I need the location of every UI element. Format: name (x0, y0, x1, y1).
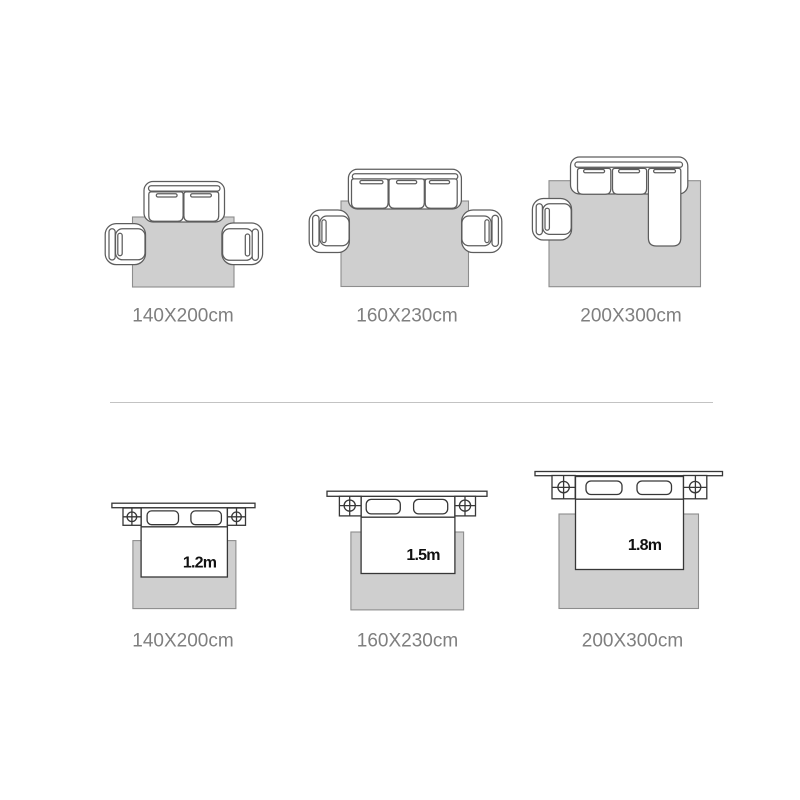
svg-text:1.5m: 1.5m (406, 547, 440, 564)
svg-text:200X300cm: 200X300cm (582, 631, 683, 652)
svg-text:160X230cm: 160X230cm (356, 306, 457, 327)
svg-text:160X230cm: 160X230cm (357, 631, 458, 652)
svg-text:140X200cm: 140X200cm (132, 631, 233, 652)
svg-text:1.2m: 1.2m (183, 555, 217, 572)
svg-text:1.8m: 1.8m (628, 537, 662, 554)
svg-text:200X300cm: 200X300cm (580, 306, 681, 327)
svg-text:140X200cm: 140X200cm (132, 306, 233, 327)
